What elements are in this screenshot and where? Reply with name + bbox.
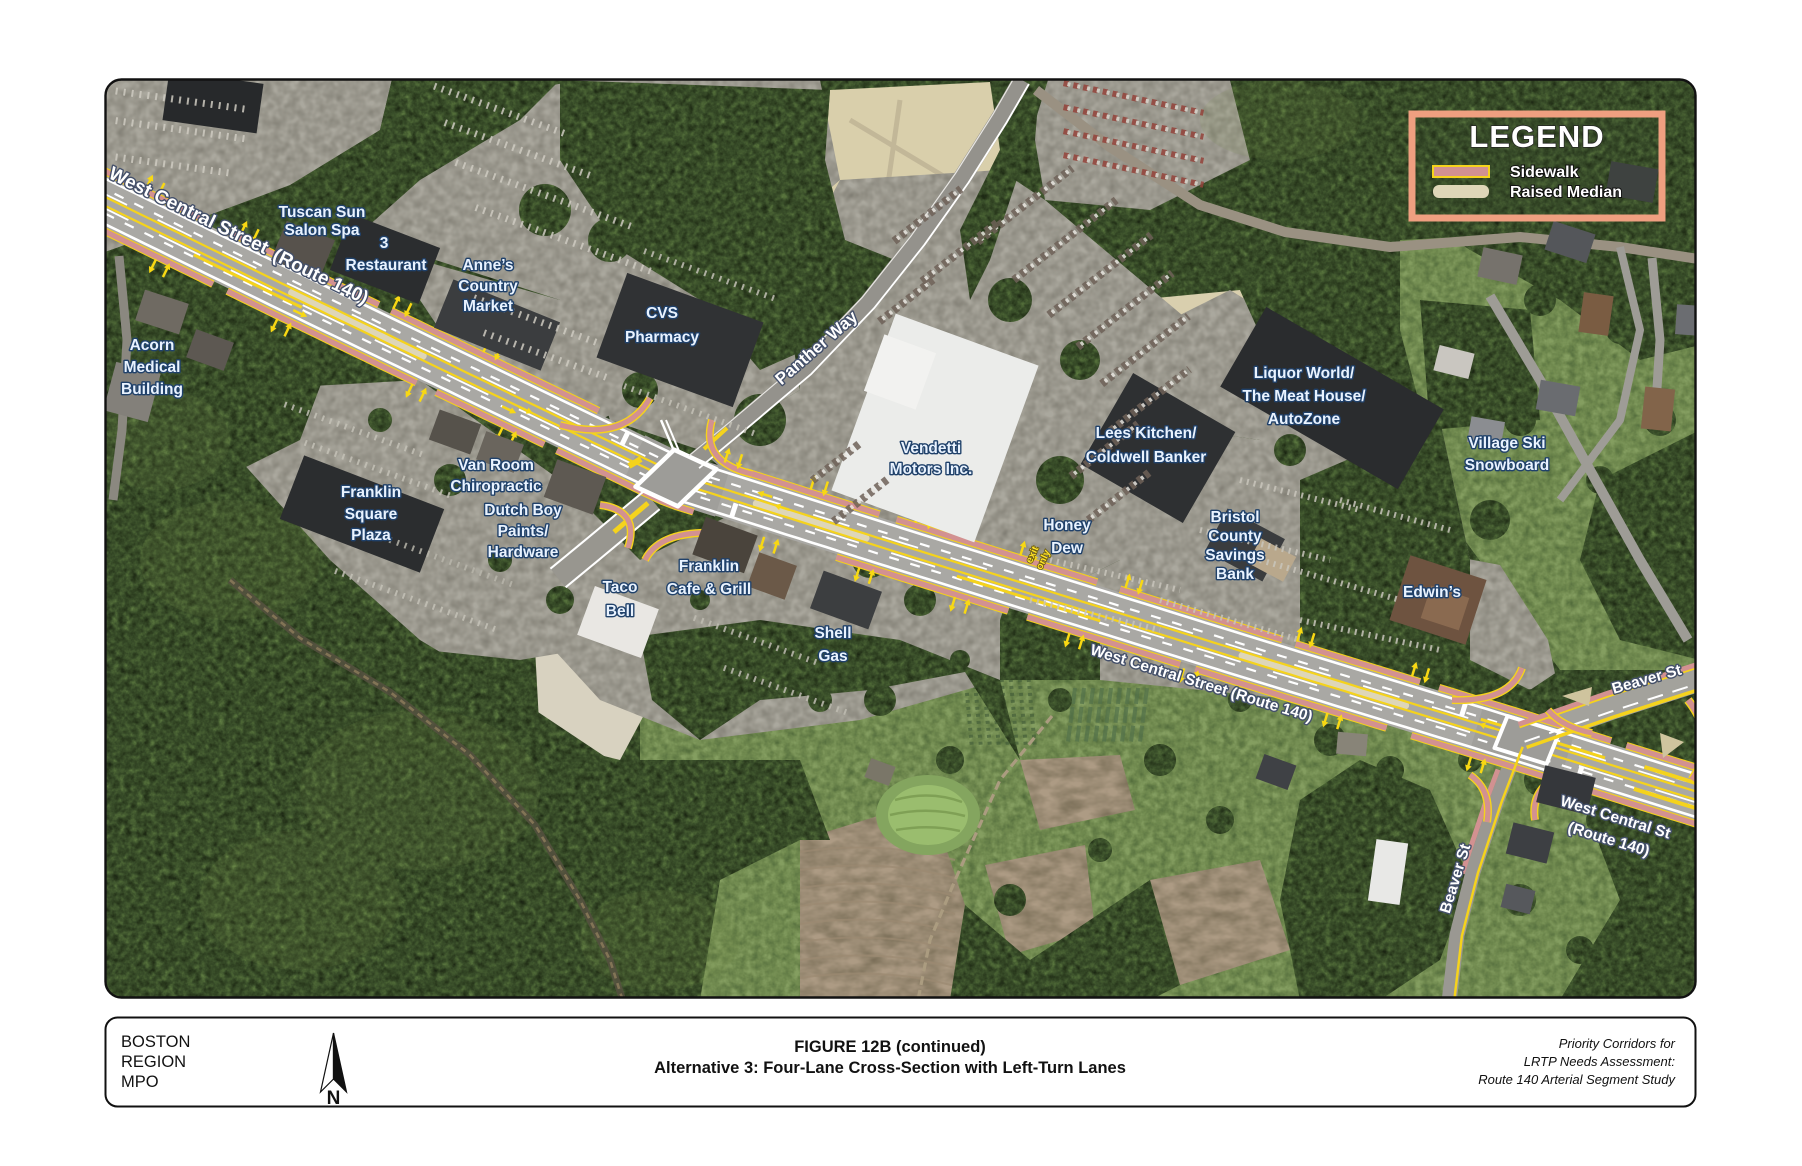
svg-text:FIGURE 12B (continued): FIGURE 12B (continued): [794, 1038, 986, 1056]
svg-text:REGION: REGION: [121, 1053, 186, 1071]
svg-text:MPO: MPO: [121, 1073, 159, 1091]
svg-text:Raised Median: Raised Median: [1510, 184, 1622, 201]
svg-text:Alternative 3: Four-Lane Cross: Alternative 3: Four-Lane Cross-Section w…: [654, 1059, 1126, 1077]
svg-text:LEGEND: LEGEND: [1469, 119, 1604, 154]
svg-text:Edwin’s: Edwin’s: [1403, 584, 1461, 601]
svg-text:Priority Corridors for: Priority Corridors for: [1559, 1036, 1676, 1051]
svg-text:Sidewalk: Sidewalk: [1510, 164, 1579, 181]
svg-text:Tuscan SunSalon Spa: Tuscan SunSalon Spa: [279, 204, 366, 239]
svg-text:Anne’sCountryMarket: Anne’sCountryMarket: [458, 257, 518, 315]
svg-text:3: 3: [380, 235, 389, 252]
svg-text:AcornMedicalBuilding: AcornMedicalBuilding: [121, 337, 183, 398]
svg-text:N: N: [327, 1088, 341, 1109]
svg-text:BOSTON: BOSTON: [121, 1033, 190, 1051]
svg-text:Route 140 Arterial Segment Stu: Route 140 Arterial Segment Study: [1478, 1072, 1676, 1087]
svg-text:Restaurant: Restaurant: [346, 257, 427, 274]
svg-text:LRTP Needs Assessment:: LRTP Needs Assessment:: [1524, 1054, 1676, 1069]
